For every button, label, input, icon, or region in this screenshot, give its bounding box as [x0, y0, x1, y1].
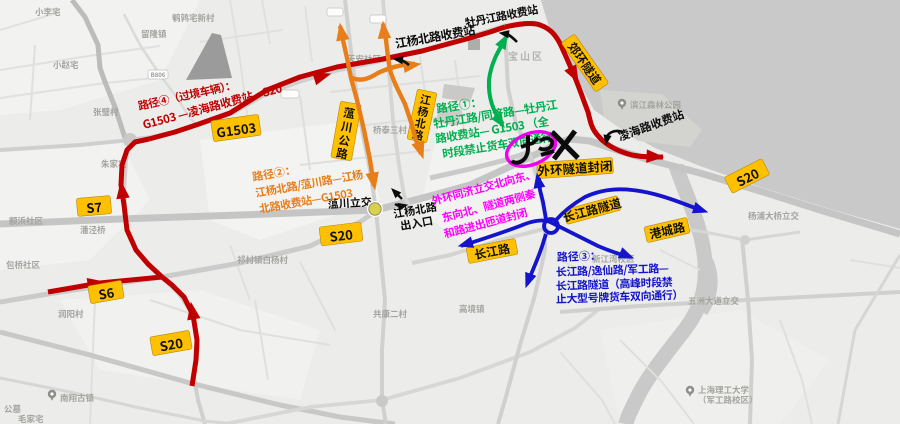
svg-text:桥泰三村: 桥泰三村: [373, 124, 408, 136]
svg-text:包桥社区: 包桥社区: [6, 259, 41, 271]
svg-text:毛家宅: 毛家宅: [18, 413, 44, 424]
svg-text:潘泾桥: 潘泾桥: [80, 224, 106, 236]
svg-text:共康二村: 共康二村: [373, 308, 408, 320]
svg-text:小李宅: 小李宅: [35, 6, 61, 18]
svg-text:留隆镇: 留隆镇: [141, 28, 167, 40]
svg-text:S20: S20: [158, 333, 185, 356]
svg-text:五洲大道立交: 五洲大道立交: [688, 295, 740, 307]
svg-text:S20: S20: [328, 224, 354, 246]
svg-text:公墓: 公墓: [4, 403, 22, 415]
svg-text:润阳村: 润阳村: [58, 308, 84, 320]
svg-text:南翔古镇: 南翔古镇: [60, 392, 95, 404]
svg-text:B806: B806: [151, 70, 166, 79]
svg-text:杨浦大桥立交: 杨浦大桥立交: [748, 210, 800, 222]
svg-text:鹌鹑宅新村: 鹌鹑宅新村: [172, 12, 215, 24]
svg-text:小赵宅: 小赵宅: [53, 59, 79, 71]
svg-text:高境镇: 高境镇: [459, 303, 485, 315]
svg-text:宝山区: 宝山区: [508, 48, 544, 63]
svg-text:颛浜社区: 颛浜社区: [9, 215, 44, 227]
svg-text:祁村镇白杨村: 祁村镇白杨村: [237, 254, 289, 266]
svg-text:（军工路校区）: （军工路校区）: [698, 394, 758, 406]
svg-text:S7: S7: [85, 197, 103, 217]
svg-text:张璧村: 张璧村: [93, 106, 119, 118]
